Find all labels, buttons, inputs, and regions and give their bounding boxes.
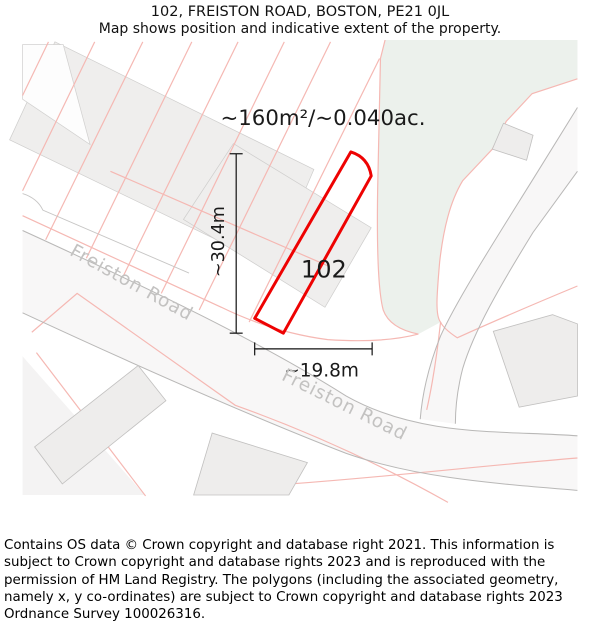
property-number-label: 102 [301, 256, 347, 284]
map-canvas: ~160m²/~0.040ac. 102 ~30.4m ~19.8m Freis… [0, 40, 600, 532]
vertical-dimension-label: ~30.4m [209, 206, 229, 277]
area-label: ~160m²/~0.040ac. [220, 106, 425, 131]
report-header: 102, FREISTON ROAD, BOSTON, PE21 0JL Map… [0, 0, 600, 40]
map-subtitle: Map shows position and indicative extent… [0, 21, 600, 38]
property-address-title: 102, FREISTON ROAD, BOSTON, PE21 0JL [0, 3, 600, 21]
property-map: ~160m²/~0.040ac. 102 ~30.4m ~19.8m Freis… [0, 40, 600, 532]
copyright-attribution: Contains OS data © Crown copyright and d… [0, 533, 600, 623]
